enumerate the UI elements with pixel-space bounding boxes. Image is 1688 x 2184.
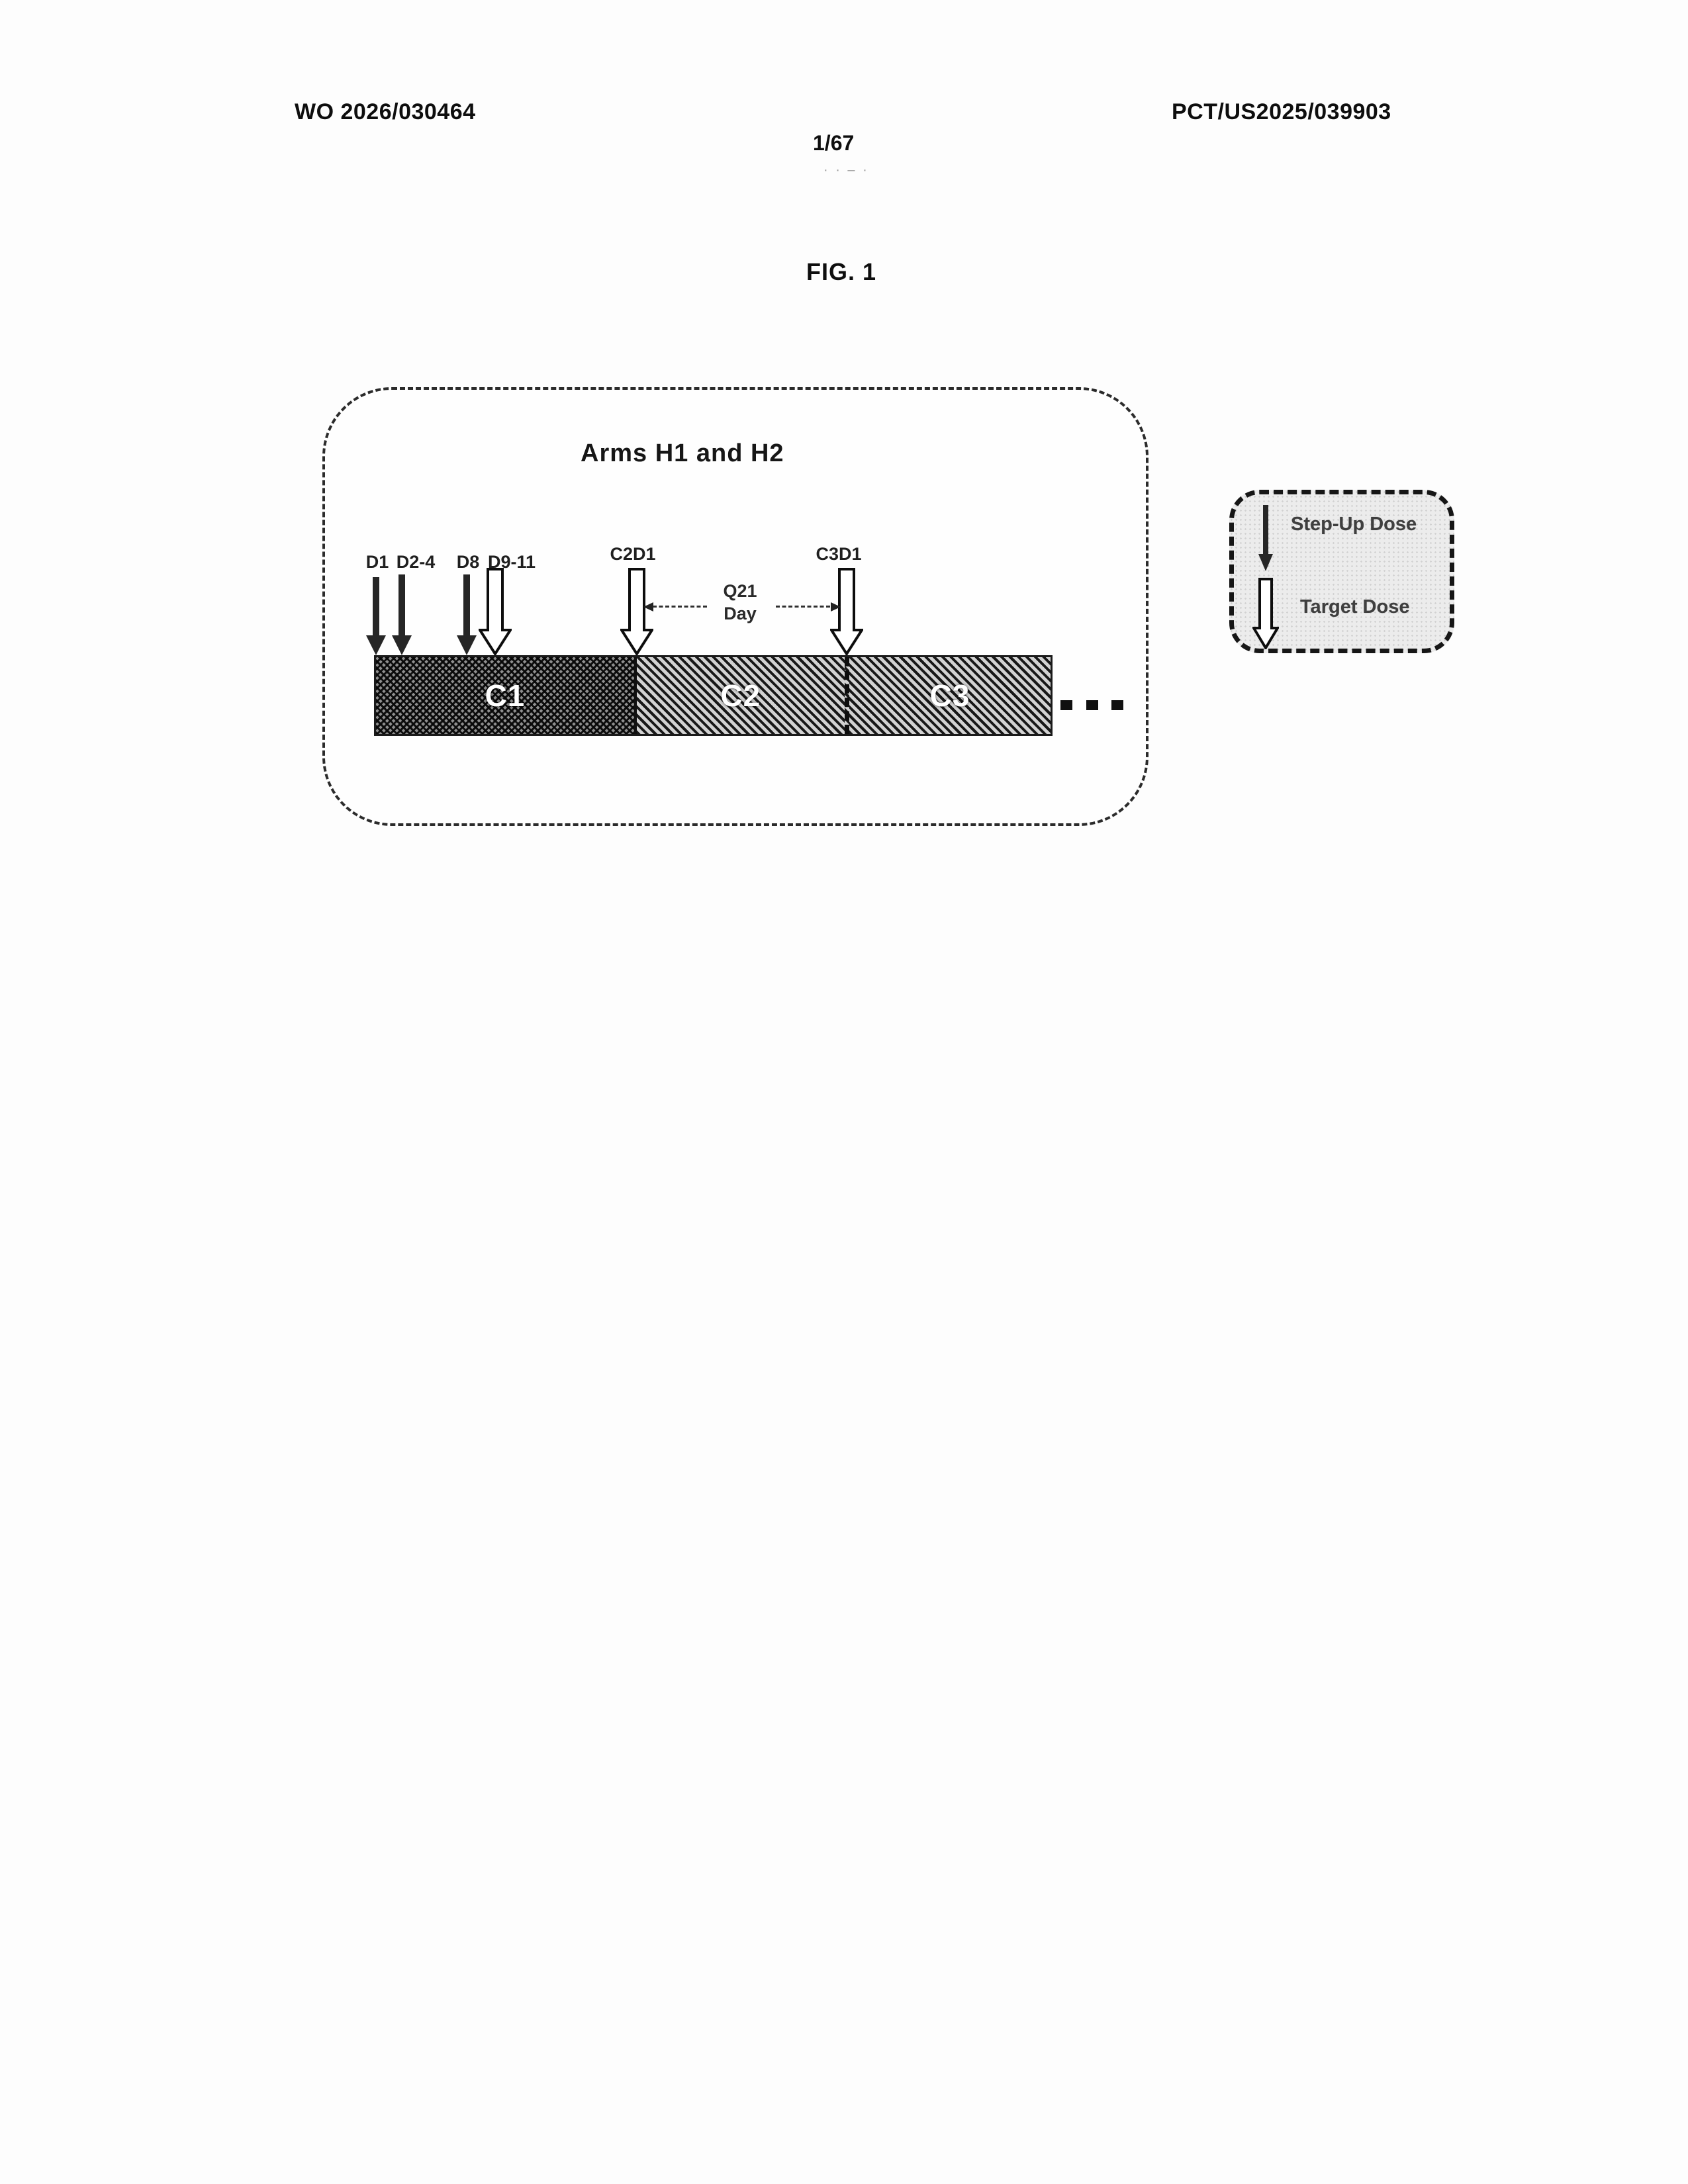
interval-label: Q21 Day (723, 580, 757, 625)
step-up-arrow-icon (392, 574, 412, 655)
dose-label-c2d1: C2D1 (610, 544, 655, 565)
cycle-segment-label: C3 (930, 678, 970, 713)
dose-label-c3d1: C3D1 (816, 544, 861, 565)
cycle-segment-c2: C2 (634, 657, 845, 734)
step-up-arrow-icon (457, 574, 477, 655)
figure-title: Arms H1 and H2 (581, 439, 784, 468)
legend-label-target-dose: Target Dose (1300, 596, 1409, 618)
page-header-left: WO 2026/030464 (295, 99, 476, 125)
dose-label-d1: D1 (366, 552, 389, 572)
cycle-bar: C1 C2 C3 (374, 655, 1053, 736)
patent-drawing-page: WO 2026/030464 PCT/US2025/039903 1/67 · … (0, 0, 1688, 2184)
continuation-dot (1111, 700, 1123, 710)
step-up-arrow-icon (366, 577, 386, 655)
continuation-dot (1060, 700, 1072, 710)
page-header-right: PCT/US2025/039903 (1172, 99, 1391, 125)
cycle-segment-label: C1 (485, 678, 525, 713)
cycle-segment-c1: C1 (376, 657, 634, 734)
continuation-dot (1086, 700, 1098, 710)
target-arrow-icon (479, 568, 512, 655)
page-number-marks: · · – · (823, 163, 869, 178)
interval-arrowhead-left-icon (643, 602, 653, 612)
interval-arrowhead-right-icon (831, 602, 841, 612)
target-arrow-icon (830, 568, 863, 655)
legend-target-arrow-icon (1252, 578, 1279, 649)
interval-dashed-line-right (776, 606, 830, 608)
dose-label-d2-4: D2-4 (397, 552, 436, 572)
interval-label-line2: Day (723, 602, 757, 625)
cycle-segment-c3: C3 (845, 657, 1051, 734)
target-arrow-icon (620, 568, 653, 655)
figure-label: FIG. 1 (806, 258, 876, 286)
dose-label-d8: D8 (457, 552, 480, 572)
cycle-segment-label: C2 (720, 678, 761, 713)
interval-dashed-line-left (653, 606, 707, 608)
page-number: 1/67 (813, 131, 854, 156)
legend-label-step-up-dose: Step-Up Dose (1291, 514, 1417, 535)
legend-step-up-arrow-icon (1258, 505, 1273, 571)
interval-label-line1: Q21 (723, 580, 757, 602)
